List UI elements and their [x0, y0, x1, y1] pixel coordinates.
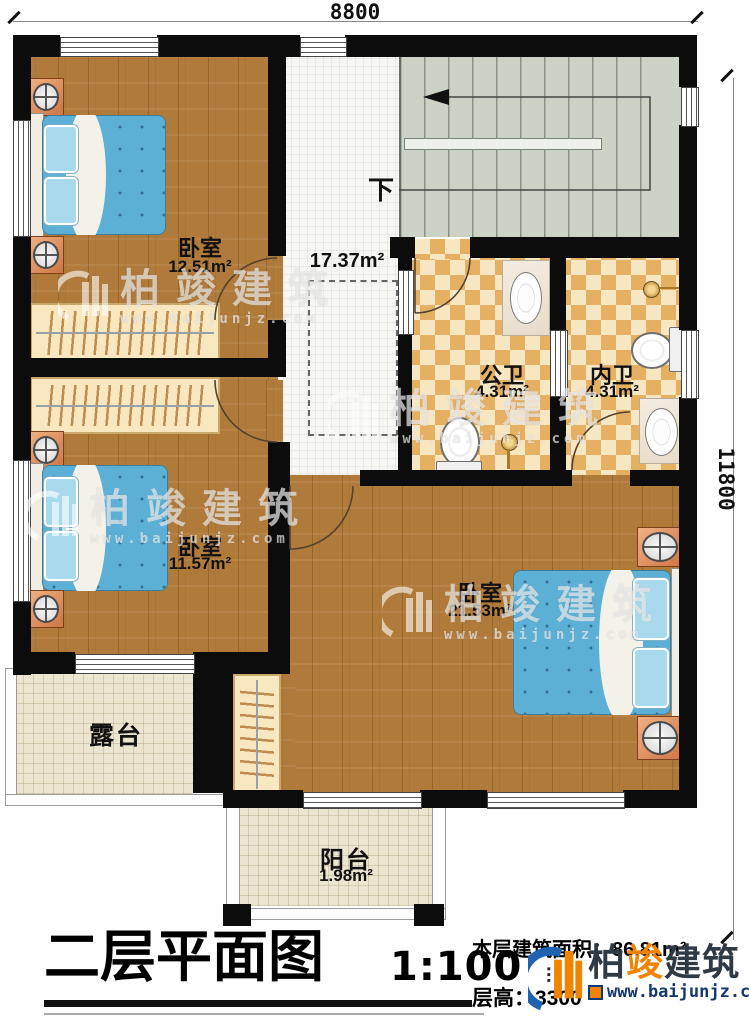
bed-bedroom-top-left — [42, 115, 166, 235]
bath-vent-window — [550, 330, 568, 397]
shower-head-icon — [643, 281, 660, 298]
window — [13, 460, 31, 602]
nightstand — [28, 78, 64, 116]
pillow — [633, 648, 669, 708]
wardrobe-pole — [36, 332, 214, 334]
lamp-icon — [33, 436, 59, 464]
wall — [550, 395, 566, 475]
terrace-slider-door — [75, 654, 195, 674]
room-area-ensuite-bath: 4.31m² — [574, 382, 650, 402]
nightstand — [28, 236, 64, 274]
wall — [550, 258, 566, 330]
wall — [193, 652, 290, 674]
balcony-parapet-bottom — [226, 908, 446, 920]
wall — [470, 237, 697, 258]
lamp-icon — [33, 241, 59, 269]
stair-center-rail — [404, 138, 602, 150]
wardrobe-bedroom-mid-left — [30, 377, 220, 434]
dimension-width: 8800 — [300, 0, 410, 24]
door-threshold-public-bath — [415, 239, 470, 259]
stair-down-label: 下 — [366, 170, 396, 207]
room-area-bedroom-master: 21.53m² — [430, 601, 530, 621]
nightstand — [637, 527, 683, 567]
lamp-icon — [642, 721, 678, 755]
wall — [13, 652, 75, 674]
company-logo-icon — [528, 944, 586, 1014]
stair-edge-line — [399, 55, 401, 237]
wall — [268, 320, 286, 377]
company-url-icon — [588, 985, 603, 1000]
balcony-pillar — [414, 904, 444, 926]
nightstand — [637, 716, 683, 760]
window — [60, 37, 159, 57]
nightstand — [28, 590, 64, 628]
wall — [193, 672, 233, 793]
stair-void-outline — [308, 280, 398, 436]
lamp-icon — [642, 532, 678, 562]
balcony-parapet-right — [432, 806, 446, 920]
window — [681, 87, 699, 127]
company-logo: 柏竣建筑 www.baijunjz.com — [528, 944, 750, 1014]
company-logo-text: 柏竣建筑 — [588, 944, 750, 981]
wall — [13, 235, 31, 460]
dimension-tick — [720, 69, 733, 82]
wall — [13, 358, 285, 377]
title-underline-thin — [44, 1013, 484, 1015]
terrace-parapet-left — [5, 668, 17, 806]
wall — [223, 790, 303, 808]
company-website: www.baijunjz.com — [607, 982, 750, 1002]
floor-plan-canvas: 卧室 12.51m² 17.37m² 公卫 4.31m² 内卫 4.31m² 卧… — [0, 0, 750, 1034]
lamp-icon — [33, 83, 59, 111]
wall — [679, 125, 697, 330]
lamp-icon — [33, 595, 59, 623]
pillow — [44, 125, 78, 173]
wardrobe-bedroom-top-left — [30, 303, 220, 363]
dimension-tick — [690, 11, 703, 24]
terrace-parapet-bottom — [5, 794, 229, 806]
ensuite-sink — [645, 408, 678, 456]
pillow — [44, 177, 78, 225]
wall — [679, 35, 697, 87]
title-underline — [44, 1000, 472, 1007]
wall — [268, 50, 286, 256]
pillow — [44, 477, 78, 527]
balcony-parapet-left — [226, 806, 240, 920]
pillow — [44, 531, 78, 581]
wall — [630, 470, 697, 486]
room-area-public-bath: 4.31m² — [464, 382, 540, 402]
room-area-hallway: 17.37m² — [292, 250, 402, 273]
window — [681, 330, 699, 399]
master-bottom-window — [487, 792, 625, 809]
room-area-balcony: 1.98m² — [308, 866, 384, 886]
public-bath-sink — [510, 272, 542, 324]
wardrobe-master-nook — [233, 674, 281, 795]
shower-arm — [658, 287, 679, 289]
bed-master — [513, 570, 671, 715]
wall — [345, 35, 697, 57]
dimension-height: 11800 — [716, 414, 738, 544]
wall — [679, 397, 697, 808]
bath-vent-window — [398, 270, 414, 335]
wall — [420, 790, 487, 808]
wardrobe-pole — [256, 680, 258, 789]
wall — [623, 790, 697, 808]
floor-height-caption: 层高： — [472, 987, 535, 1010]
public-bath-toilet — [440, 417, 480, 467]
wall — [398, 333, 412, 475]
wall — [283, 470, 290, 486]
window — [13, 120, 31, 237]
room-area-bedroom-top-left: 12.51m² — [150, 257, 250, 277]
pillow — [633, 578, 669, 640]
dimension-tick — [7, 11, 20, 24]
floor-drain-stem — [507, 449, 510, 469]
room-area-bedroom-mid-left: 11.57m² — [150, 554, 250, 574]
room-label-terrace: 露台 — [78, 716, 154, 752]
page-title: 二层平面图 — [44, 928, 324, 987]
balcony-slider-door — [303, 792, 422, 809]
wall — [13, 35, 31, 120]
balcony-pillar — [223, 904, 251, 926]
window — [300, 37, 347, 57]
wardrobe-pole — [36, 405, 214, 407]
wall — [360, 470, 572, 486]
